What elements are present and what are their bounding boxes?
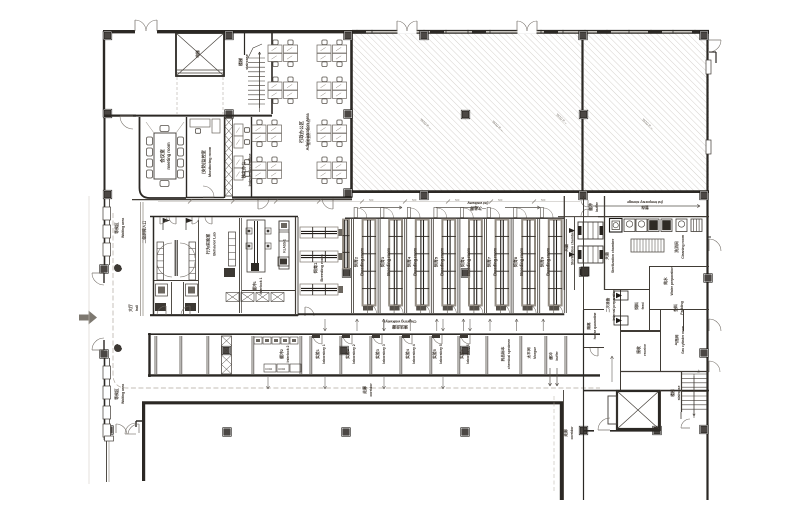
svg-text:饲育3: 饲育3	[379, 256, 385, 268]
svg-text:楼梯: 楼梯	[237, 58, 243, 66]
svg-text:走廊: 走廊	[563, 429, 568, 438]
svg-text:大厅: 大厅	[128, 304, 133, 312]
svg-text:500: 500	[498, 198, 503, 202]
svg-text:等候区: 等候区	[114, 388, 119, 401]
svg-text:二级屏障入口: 二级屏障入口	[142, 220, 147, 243]
svg-text:Breeding room: Breeding room	[386, 248, 391, 276]
svg-text:Padding: Padding	[680, 301, 684, 314]
svg-text:气瓶间: 气瓶间	[674, 334, 679, 345]
svg-text:灭菌: 灭菌	[564, 244, 569, 253]
svg-text:太平间: 太平间	[526, 347, 531, 359]
svg-text:Gas cylinder room: Gas cylinder room	[681, 326, 685, 354]
svg-text:500: 500	[369, 198, 374, 202]
svg-text:corridor: corridor	[570, 426, 574, 440]
svg-text:Waiting area: Waiting area	[121, 383, 125, 404]
svg-text:缓冲1: 缓冲1	[252, 281, 257, 291]
svg-text:Breeding room: Breeding room	[439, 248, 444, 276]
svg-text:实验2: 实验2	[345, 349, 350, 359]
svg-text:行政办公区: 行政办公区	[298, 120, 305, 144]
svg-text:二次准备: 二次准备	[605, 297, 610, 312]
svg-text:饲料: 饲料	[634, 302, 639, 311]
svg-text:缓冲2: 缓冲2	[279, 349, 284, 359]
svg-text:Waiting area: Waiting area	[121, 217, 125, 238]
svg-text:Breeding room: Breeding room	[546, 248, 551, 276]
svg-text:Breeding room: Breeding room	[493, 248, 498, 276]
svg-text:饲育2: 饲育2	[353, 256, 359, 268]
svg-text:laboratory 1: laboratory 1	[322, 344, 326, 363]
svg-text:Breeding room: Breeding room	[319, 254, 324, 282]
svg-text:垫料: 垫料	[673, 304, 678, 312]
svg-text:Interlock 2: Interlock 2	[286, 345, 290, 362]
svg-text:meeting room: meeting room	[166, 142, 171, 169]
svg-text:饲育4: 饲育4	[406, 256, 412, 268]
svg-text:纯水: 纯水	[663, 277, 668, 285]
svg-text:laboratory 5: laboratory 5	[439, 344, 443, 363]
svg-text:Breeding room: Breeding room	[519, 248, 524, 276]
svg-text:C002: C002	[265, 367, 273, 371]
svg-text:实验1: 实验1	[315, 349, 320, 359]
svg-text:饲育5: 饲育5	[432, 256, 438, 268]
svg-text:Behavior Lab: Behavior Lab	[212, 232, 217, 256]
svg-text:Independent office: Independent office	[247, 153, 252, 187]
svg-text:实验5: 实验5	[432, 349, 437, 359]
svg-text:等候区: 等候区	[114, 222, 119, 235]
svg-text:corridor: corridor	[369, 383, 373, 397]
svg-text:500: 500	[412, 198, 417, 202]
svg-text:一次走廊: 一次走廊	[470, 206, 486, 212]
svg-text:KLASS-1: KLASS-1	[283, 239, 287, 253]
svg-text:(lst temporary storage: (lst temporary storage	[627, 200, 663, 204]
svg-text:独立办公: 独立办公	[240, 161, 246, 179]
svg-text:Water preparation: Water preparation	[670, 267, 674, 296]
svg-text:Monitoring room: Monitoring room	[207, 146, 212, 177]
svg-text:饲育1: 饲育1	[312, 262, 319, 274]
svg-text:实验6: 实验6	[459, 349, 464, 359]
svg-text:接收: 接收	[636, 346, 641, 355]
svg-text:楼梯: 楼梯	[670, 389, 675, 397]
svg-text:chemical specimen: chemical specimen	[507, 339, 511, 369]
svg-text:建筑面积 120.5㎡: 建筑面积 120.5㎡	[306, 118, 311, 145]
svg-text:缓冲: 缓冲	[548, 352, 553, 360]
svg-text:laboratory 4: laboratory 4	[412, 344, 416, 363]
svg-text:Breeding room: Breeding room	[466, 248, 471, 276]
svg-text:饲育9: 饲育9	[539, 256, 545, 268]
svg-text:receive: receive	[643, 344, 647, 356]
svg-text:buffer: buffer	[595, 202, 599, 212]
svg-text:灭菌: 灭菌	[604, 252, 609, 261]
svg-text:Breeding room: Breeding room	[360, 248, 365, 276]
svg-text:Morgue: Morgue	[533, 347, 537, 359]
svg-text:饲育6: 饲育6	[459, 256, 465, 268]
svg-text:Breeding room: Breeding room	[413, 248, 418, 276]
svg-text:(安防)监控室: (安防)监控室	[200, 149, 207, 174]
svg-text:Sterilization chamber: Sterilization chamber	[571, 230, 575, 265]
svg-text:饲育8: 饲育8	[512, 256, 518, 268]
svg-text:饲育7: 饲育7	[486, 256, 492, 268]
svg-text:buffer: buffer	[555, 351, 559, 361]
svg-text:(lst walkway: (lst walkway	[467, 201, 489, 205]
svg-text:Cleaning room: Cleaning room	[681, 235, 685, 259]
svg-text:hall: hall	[135, 305, 139, 311]
svg-text:走廊: 走廊	[362, 386, 367, 395]
svg-text:缓冲: 缓冲	[588, 203, 593, 211]
svg-text:Sterilization chamber: Sterilization chamber	[611, 238, 615, 273]
svg-text:行为实验室: 行为实验室	[205, 234, 211, 255]
svg-text:Interlock 1: Interlock 1	[259, 277, 263, 294]
svg-text:电梯: 电梯	[195, 50, 200, 58]
svg-text:laboratory 2: laboratory 2	[352, 344, 356, 363]
svg-text:feed: feed	[641, 303, 645, 310]
svg-text:上: 上	[697, 368, 700, 373]
svg-text:清洁走廊: 清洁走廊	[392, 325, 408, 331]
svg-text:staircase: staircase	[677, 386, 681, 401]
svg-text:实验3: 实验3	[375, 349, 380, 359]
svg-text:隔离: 隔离	[586, 322, 591, 330]
svg-text:实验4: 实验4	[405, 348, 410, 359]
svg-text:500: 500	[455, 198, 460, 202]
svg-text:U002: U002	[278, 367, 286, 371]
svg-text:staircase: staircase	[245, 54, 249, 70]
svg-text:house quarantine: house quarantine	[593, 312, 597, 339]
svg-text:药品标本: 药品标本	[500, 346, 505, 361]
svg-text:500: 500	[541, 198, 546, 202]
svg-text:laboratory 3: laboratory 3	[382, 344, 386, 363]
svg-text:laboratory 6: laboratory 6	[466, 344, 470, 363]
svg-text:会议室: 会议室	[159, 149, 166, 163]
svg-text:洗消间: 洗消间	[674, 241, 679, 253]
